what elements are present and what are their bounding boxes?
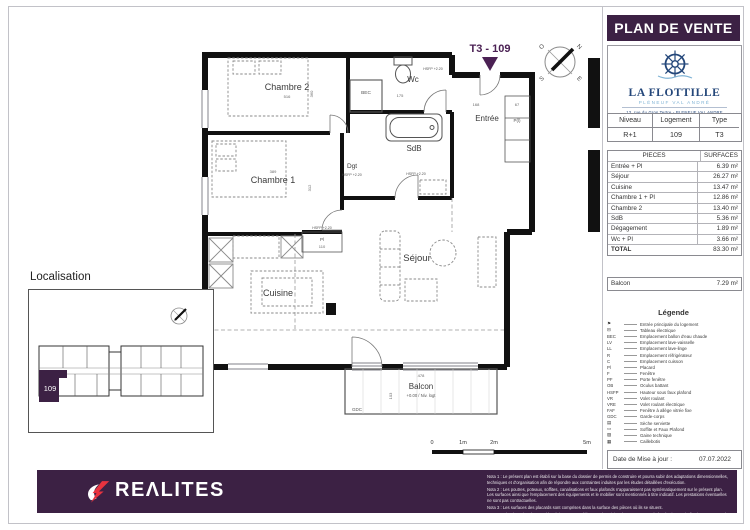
legend-label: Garde-corps [640,414,740,419]
kitchen-counter [233,236,279,258]
table-row: Cuisine13.47 m² [608,182,741,192]
row-label: Séjour [608,172,697,181]
legend-label: Soffite et Faux Plafond [640,427,740,432]
legend-key: FAF [607,408,624,413]
row-value: 13.40 m² [697,204,741,213]
legend-key: F [607,371,624,376]
towel-radiator-icon: ▤ [607,420,624,426]
legend-dash [624,330,637,331]
surfaces-header-surfaces: SURFACES [700,151,741,161]
unit-info-table: Niveau Logement Type R+1 109 T3 [607,113,742,142]
legend-dash [624,348,637,349]
legend-label: Emplacement cuisson [640,359,740,364]
electric-panel-icon: ⊟ [607,327,624,333]
legend-dash [624,379,637,380]
unit-109-label: 109 [44,384,57,393]
room-label-chambre2: Chambre 2 [265,82,310,92]
legend-dash [624,342,637,343]
tag-balcon-level: +0.00 / Niv. logt [407,393,437,398]
grating-swatch-icon: ▦ [607,439,624,445]
scale-1m: 1m [459,440,467,446]
duct-swatch-icon: ▨ [607,432,624,438]
footer-note: Nota 2 : Les poutres, poteaux, soffites,… [487,487,729,504]
brand-tagline: PLÉNEUF VAL ANDRÉ [608,100,741,105]
legend-dash [624,324,637,325]
legend-label: Emplacement lave-vaisselle [640,340,740,345]
legend-label: Volet roulant électrique [640,402,740,407]
legend-dash [624,429,637,430]
surfaces-table: PIECES SURFACES Entrée + Pl6.39 m² Séjou… [607,150,742,256]
row-value: 1.89 m² [697,224,741,233]
entrance-arrow-icon [482,57,498,71]
brand-name: LA FLOTTILLE [608,87,741,99]
structural-post [326,303,336,315]
table-row: Dégagement1.89 m² [608,223,741,233]
room-label-sejour: Séjour [403,253,430,264]
footer-note: Nota 4 : L'implantation des meubles évie… [487,512,729,523]
balcony-surface-row: Balcon 7.29 m² [607,277,742,291]
legend-dash [624,336,637,337]
unit-dividers [53,346,181,396]
neighbour-wall-bottom [588,150,600,232]
tag-pl: Pl [320,237,324,242]
scale-bar: 0 1m 2m 5m [430,440,591,454]
entrance-flag-icon: ⚑ [607,321,624,327]
realites-logo-icon [83,478,110,505]
legend-key: BEC [607,334,624,339]
legend-label: Entrée principale du logement [640,322,740,327]
legend-key: Pl [607,365,624,370]
localisation-compass-icon [171,308,187,324]
row-label: SdB [608,214,697,223]
unit-marker: T3 - 109 [470,43,511,71]
compass-north: N [575,44,582,51]
date-updated-box: Date de Mise à jour : 07.07.2022 [607,450,742,469]
footer-band: REΛLITES Nota 1 : Le présent plan est ét… [37,470,737,513]
footer-note: Nota 1 : Le présent plan est établi sur … [487,474,729,485]
legend-label: Porte fenêtre [640,377,740,382]
footer-note: Nota 3 : Les surfaces des placards sont … [487,505,729,511]
balcony-value: 7.29 m² [698,278,741,290]
unit-value-type: T3 [700,128,739,141]
legend-dash [624,392,637,393]
legend-label: Emplacement ballon d'eau chaude [640,334,740,339]
sofa [380,231,400,301]
scale-0: 0 [430,440,433,446]
surfaces-total-row: TOTAL 83.30 m² [608,244,741,254]
room-label-wc: Wc [407,75,419,84]
legend-label: Tableau électrique [640,328,740,333]
table-row: Séjour26.27 m² [608,171,741,181]
unit-value-logement: 109 [653,128,700,141]
row-value: 6.39 m² [697,162,741,171]
row-value: 3.66 m² [697,235,741,244]
localisation-map: 109 [29,290,213,430]
sideboard [478,237,496,287]
legend-label: Placard [640,365,740,370]
room-label-balcon: Balcon [409,382,433,391]
room-label-entree: Entrée [475,114,499,123]
tag-hsfp-sdb: HSFP +2.20 [406,172,426,176]
closets [302,80,530,252]
date-label: Date de Mise à jour : [608,456,699,463]
legend-label: Fenêtre [640,371,740,376]
tag-gdc: GDC [352,407,363,412]
brand-card: LA FLOTTILLE PLÉNEUF VAL ANDRÉ 13, rue d… [607,45,742,115]
row-label: Wc + Pl [608,235,697,244]
legend-key: GDC [607,414,624,419]
legend-label: Emplacement réfrigérateur [640,353,740,358]
dim-c2-h: 360 [309,90,314,97]
legend-key: PF [607,377,624,382]
legend-dash [624,435,637,436]
legend-dash [624,398,637,399]
room-label-sdb: SdB [406,144,421,153]
dim-c2-w: 516 [284,94,291,99]
dim-balcon-w: 478 [418,373,425,378]
unit-header-niveau: Niveau [608,114,653,128]
legend-label: Hauteur sous faux plafond [640,390,740,395]
legend-label: Volet roulant [640,396,740,401]
neighbour-wall-top [588,58,600,128]
row-label: Dégagement [608,224,697,233]
dim-balcon-h: 103 [388,392,393,399]
legend-key: VR [607,396,624,401]
legend-label: Caillebotis [640,439,740,444]
scale-2m: 2m [490,440,498,446]
legend-label: Oculus battant [640,383,740,388]
legend-key: VRE [607,402,624,407]
room-label-chambre1: Chambre 1 [251,175,296,185]
soffit-swatch-icon: ▭ [607,426,624,432]
surfaces-header-row: PIECES SURFACES [608,151,741,161]
vanity [420,180,446,194]
dim-c1-h: 312 [307,184,312,191]
dim-pl-w: 110 [319,244,326,249]
total-label: TOTAL [608,245,698,254]
row-label: Chambre 1 + Pl [608,193,697,202]
row-value: 5.36 m² [697,214,741,223]
appliances [209,236,303,288]
unit-header-type: Type [700,114,739,128]
legend-dash [624,355,637,356]
table-row: Entrée + Pl6.39 m² [608,161,741,171]
scale-5m: 5m [583,440,591,446]
legend-dash [624,416,637,417]
legend-key: R [607,353,624,358]
plan-de-vente-sheet: T3 - 109 O N S E Chambre 2 Chambre 1 Wc … [0,0,750,530]
unit-label: T3 - 109 [470,43,511,55]
ship-wheel-icon [655,47,695,81]
tag-hsfp-wc: HSFP +2.20 [423,67,443,71]
coffee-table [405,279,437,301]
footer-notes: Nota 1 : Le présent plan est établi sur … [487,474,729,524]
compass-west: O [539,43,547,51]
toilet-tank [394,57,412,65]
legend-dash [624,423,637,424]
brand-separator [622,107,727,108]
row-label: Entrée + Pl [608,162,697,171]
dim-ent-w: 168 [473,102,480,107]
dim-c1-w: 389 [270,169,277,174]
legend-dash [624,404,637,405]
placard-box [302,232,342,252]
date-value: 07.07.2022 [699,456,741,463]
compass-east: E [575,76,582,83]
unit-value-niveau: R+1 [608,128,653,141]
row-label: Cuisine [608,183,697,192]
localisation-box: 109 [28,289,214,433]
compass-icon: O N S E [539,43,583,83]
table-row: Chambre 1 + Pl12.86 m² [608,192,741,202]
total-value: 83.30 m² [698,245,741,254]
legend-label: Gaine technique [640,433,740,438]
round-table [430,240,456,266]
row-value: 12.86 m² [697,193,741,202]
legend-dash [624,361,637,362]
legend-label: Fenêtre à allège vitrée fixe [640,408,740,413]
tag-bec: BEC [361,90,371,96]
legend-label: Emplacement lave-linge [640,346,740,351]
room-label-cuisine: Cuisine [263,288,293,298]
legend-key: OB [607,383,624,388]
legend-key: HSFP [607,390,624,395]
row-value: 13.47 m² [697,183,741,192]
tag-hsfp-pl: HSFP +2.20 [312,226,332,230]
compass-south: S [539,76,546,83]
table-row: SdB5.36 m² [608,213,741,223]
legend-label: Sèche serviette [640,421,740,426]
outer-walls [203,52,532,367]
legend-title: Légende [607,308,740,317]
table-row: Wc + Pl3.66 m² [608,234,741,244]
room-label-dgt: Dgt [347,163,357,170]
localisation-title: Localisation [30,271,91,283]
tag-hsfp-dgt: HSFP +2.20 [342,173,362,177]
dim-wc-w: 175 [397,93,404,98]
legend-item: ▦Caillebotis [607,439,740,445]
dim-ent-pl-w: 67 [515,102,520,107]
legend-dash [624,441,637,442]
legend: Légende ⚑Entrée principale du logement ⊟… [607,308,740,445]
realites-logo-text: REΛLITES [115,479,225,502]
row-label: Chambre 2 [608,204,697,213]
tag-pl-entry: P(l) [514,118,521,123]
water-heater-box [350,80,382,112]
legend-key: LL [607,346,624,351]
table-row: Chambre 213.40 m² [608,203,741,213]
legend-dash [624,367,637,368]
page-title: PLAN DE VENTE [607,15,740,41]
legend-key: LV [607,340,624,345]
row-value: 26.27 m² [697,172,741,181]
legend-dash [624,385,637,386]
legend-dash [624,410,637,411]
soffit-lines [208,198,504,330]
surfaces-header-pieces: PIECES [608,151,700,161]
legend-dash [624,373,637,374]
balcony-label: Balcon [608,278,698,290]
unit-header-logement: Logement [653,114,700,128]
legend-key: C [607,359,624,364]
